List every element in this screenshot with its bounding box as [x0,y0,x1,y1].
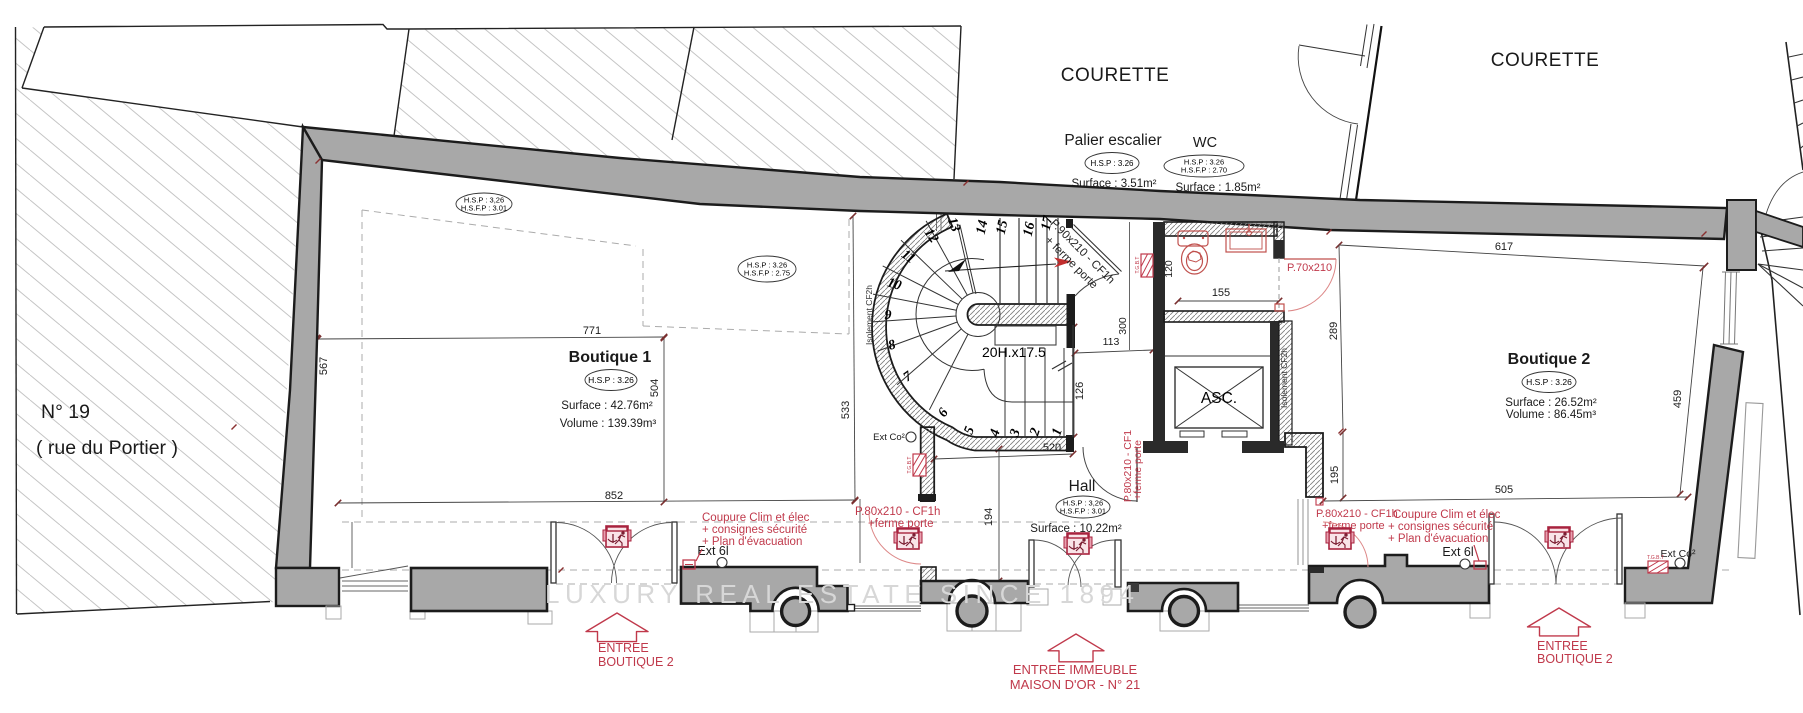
svg-text:9: 9 [885,308,892,323]
svg-text:T.G.B.T: T.G.B.T [1647,555,1664,561]
svg-text:Boutique 1: Boutique 1 [569,349,652,366]
svg-text:H.S.F.P : 2.70: H.S.F.P : 2.70 [1181,166,1227,175]
svg-text:126: 126 [1074,382,1086,400]
svg-text:Palier escalier: Palier escalier [1064,132,1161,149]
svg-text:505: 505 [1495,484,1513,496]
svg-text:LUXURY REAL ESTATE SINCE 1894: LUXURY REAL ESTATE SINCE 1894 [545,579,1139,609]
svg-text:T.G.B.T: T.G.B.T [907,457,913,474]
svg-text:+ consignes sécurité: + consignes sécurité [1388,521,1493,533]
svg-text:T.G.B.T: T.G.B.T [1135,257,1141,274]
svg-text:771: 771 [583,325,601,337]
svg-text:Volume : 139.39m³: Volume : 139.39m³ [560,418,657,430]
svg-text:ENTREE: ENTREE [598,641,649,655]
svg-text:+ Plan d'évacuation: + Plan d'évacuation [702,536,802,548]
svg-text:300: 300 [1117,317,1129,335]
svg-text:BOUTIQUE 2: BOUTIQUE 2 [598,655,674,669]
svg-text:ENTREE IMMEUBLE: ENTREE IMMEUBLE [1013,662,1138,677]
svg-text:COURETTE: COURETTE [1491,50,1600,71]
svg-text:Surface : 42.76m²: Surface : 42.76m² [561,400,653,412]
svg-text:H.S.P : 3.26: H.S.P : 3.26 [1526,377,1572,387]
svg-text:H.S.F.P : 3.01: H.S.F.P : 3.01 [461,204,507,213]
svg-text:( rue du Portier ): ( rue du Portier ) [36,437,178,459]
svg-text:H.S.F.P : 2.75: H.S.F.P : 2.75 [744,269,790,278]
svg-text:Coupure Clim et élec: Coupure Clim et élec [702,512,810,524]
svg-text:+ferme porte: +ferme porte [1132,440,1144,500]
svg-text:Surface : 1.85m²: Surface : 1.85m² [1175,182,1260,194]
svg-text:Volume : 86.45m³: Volume : 86.45m³ [1506,409,1596,421]
svg-text:120: 120 [1163,260,1175,278]
svg-text:+ consignes sécurité: + consignes sécurité [702,524,807,536]
svg-text:H.S.P : 3.26: H.S.P : 3.26 [1091,159,1135,168]
svg-text:Ext 6l: Ext 6l [1442,545,1473,559]
svg-text:Hall: Hall [1069,478,1096,495]
svg-text:ENTREE: ENTREE [1537,639,1588,653]
svg-text:504: 504 [649,379,661,397]
svg-text:H.S.P : 3.26: H.S.P : 3.26 [588,375,634,385]
svg-text:459: 459 [1672,390,1684,408]
svg-text:155: 155 [1212,287,1230,299]
svg-text:COURETTE: COURETTE [1061,65,1170,86]
svg-text:P.70x210: P.70x210 [1287,262,1332,274]
svg-text:H.S.F.P : 3.01: H.S.F.P : 3.01 [1060,507,1106,516]
svg-text:617: 617 [1495,241,1513,253]
svg-text:Boutique 2: Boutique 2 [1508,351,1591,368]
svg-text:ASC.: ASC. [1201,390,1237,407]
svg-text:Ext Co²: Ext Co² [873,432,905,443]
svg-text:20H.x17.5: 20H.x17.5 [982,344,1046,360]
svg-text:Coupure Clim et élec: Coupure Clim et élec [1393,509,1501,521]
svg-text:P.80x210 - CF1h: P.80x210 - CF1h [855,506,940,518]
svg-text:BOUTIQUE 2: BOUTIQUE 2 [1537,652,1613,666]
svg-text:Surface : 3.51m²: Surface : 3.51m² [1071,178,1156,190]
svg-text:P.80x210 - CF1h: P.80x210 - CF1h [1316,508,1398,520]
svg-text:567: 567 [318,357,330,375]
svg-text:533: 533 [840,401,852,419]
svg-text:194: 194 [983,508,995,526]
svg-text:Isolement CF2h: Isolement CF2h [864,285,874,345]
svg-text:Surface : 26.52m²: Surface : 26.52m² [1505,397,1597,409]
svg-text:520: 520 [1043,442,1061,454]
svg-text:WC: WC [1193,135,1217,151]
svg-text:852: 852 [605,490,623,502]
svg-text:MAISON D'OR - N° 21: MAISON D'OR - N° 21 [1010,677,1140,692]
svg-text:289: 289 [1328,322,1340,340]
svg-text:195: 195 [1329,466,1341,484]
svg-text:113: 113 [1103,336,1120,348]
svg-text:+ Plan d'évacuation: + Plan d'évacuation [1388,533,1488,545]
svg-text:N° 19: N° 19 [41,401,90,423]
svg-text:Isolement CF2h: Isolement CF2h [1279,348,1289,408]
